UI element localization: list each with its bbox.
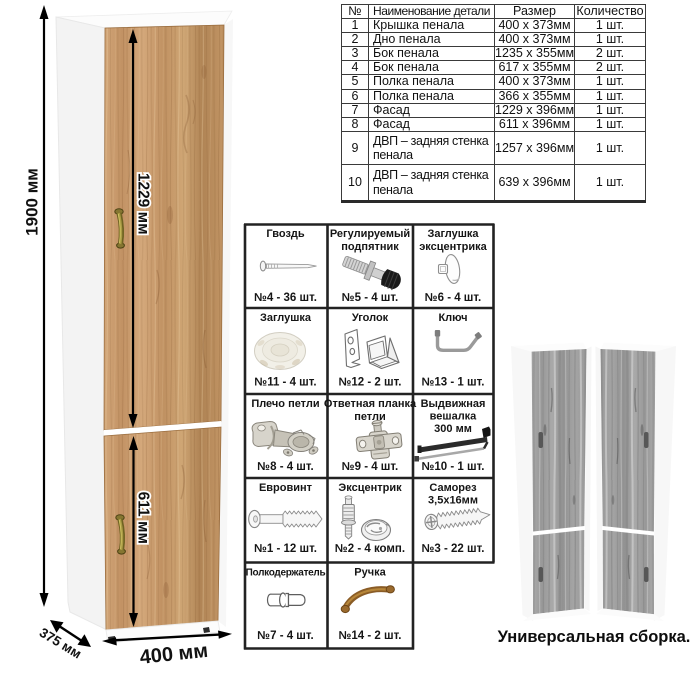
svg-text:Универсальная сборка.: Универсальная сборка. <box>498 628 691 646</box>
